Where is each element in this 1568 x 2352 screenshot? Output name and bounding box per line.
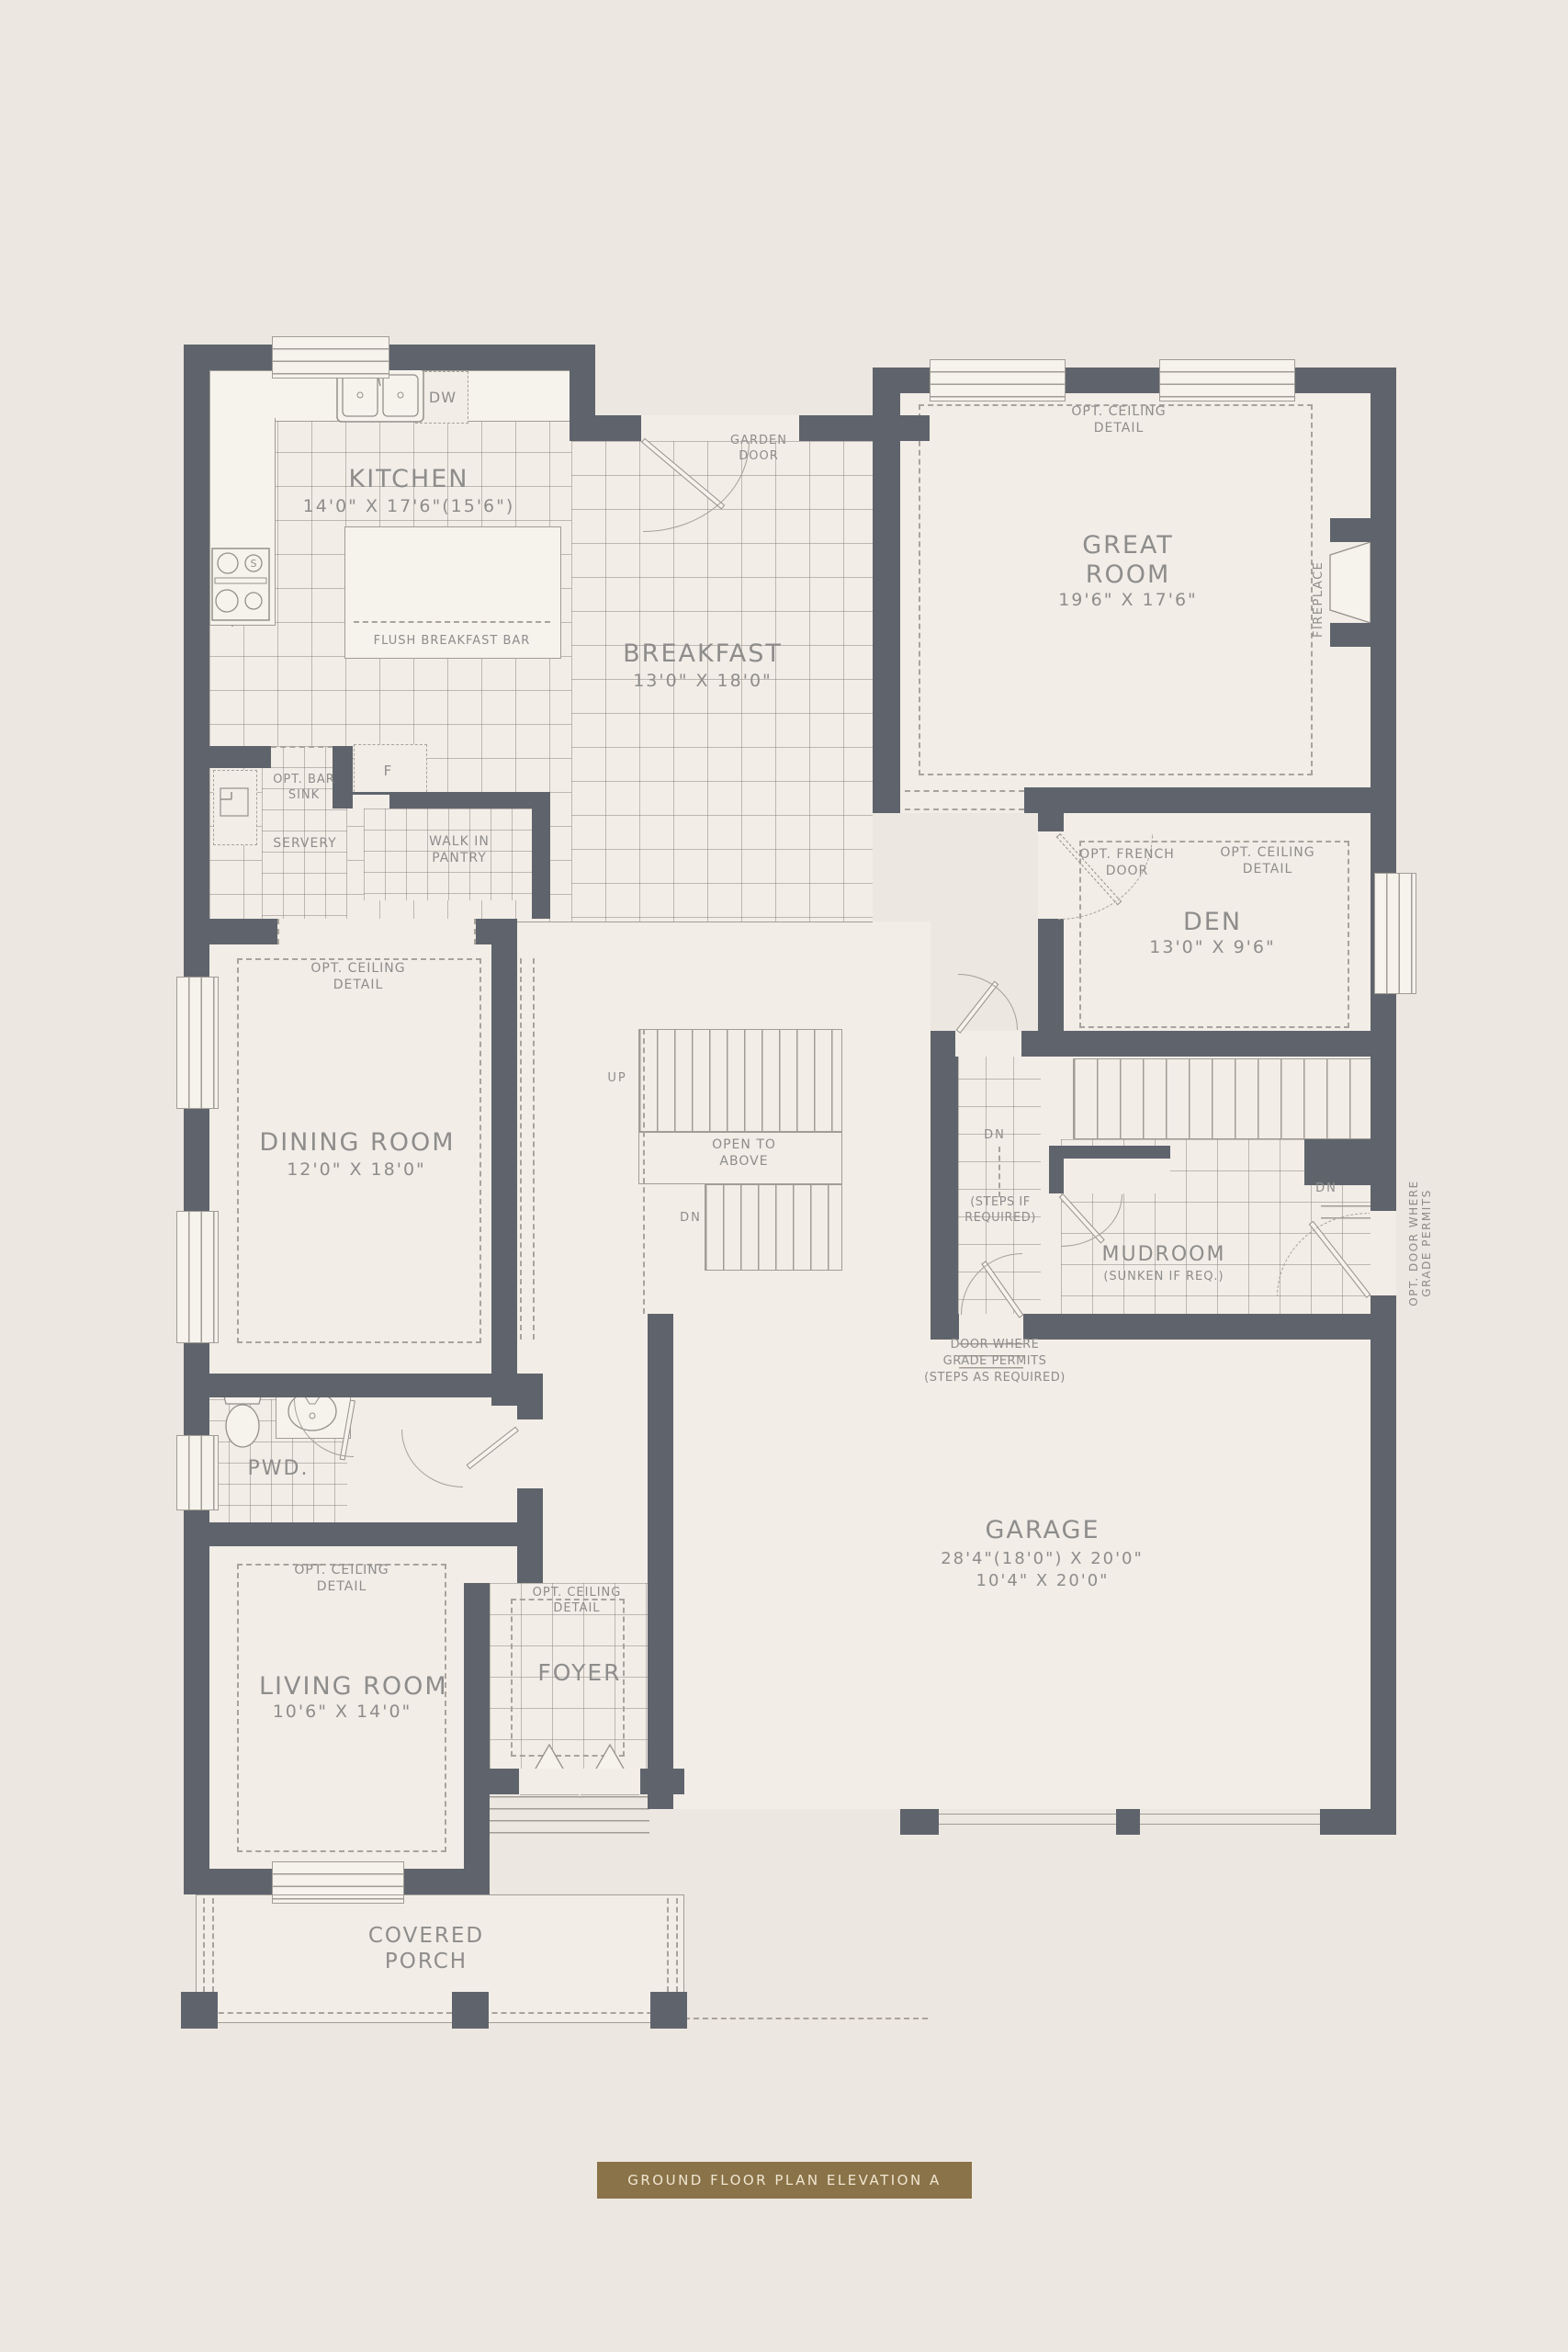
room-dims-dining: 12'0" X 18'0" [265, 1159, 448, 1181]
room-label-kitchen: KITCHEN [294, 465, 524, 494]
door-grade-label: (STEPS AS REQUIRED) [921, 1371, 1068, 1385]
wall [184, 1522, 517, 1546]
bar-sink-label: OPT. BAR [263, 773, 345, 787]
door-opening [519, 1769, 640, 1794]
room-label-dining: DINING ROOM [237, 1128, 478, 1158]
porch-column-line [212, 1898, 214, 1992]
wall [184, 746, 271, 768]
french-door-label: OPT. FRENCH [1068, 847, 1186, 863]
open-to-above-label: OPEN TO [698, 1137, 790, 1153]
dn-label: DN [676, 1211, 705, 1226]
room-label-living: LIVING ROOM [259, 1672, 424, 1702]
great-room-opening-dash [905, 790, 1024, 792]
mudroom-bench-inner [1064, 1159, 1170, 1193]
porch-column-line [203, 1898, 205, 1992]
flush-bar-label: FLUSH BREAKFAST BAR [360, 634, 544, 649]
room-label-pantry: WALK IN [413, 834, 505, 850]
ceiling-detail-label: OPT. CEILING [282, 1563, 401, 1578]
island-flush-edge-dash [354, 621, 550, 623]
wall [1320, 1809, 1396, 1835]
ceiling-detail-label: OPT. CEILING [299, 961, 418, 977]
window [176, 1435, 219, 1510]
wall [1116, 1809, 1140, 1835]
room-label-porch: COVERED [364, 1924, 489, 1950]
wall [1024, 787, 1371, 813]
room-label-great-room: GREAT [1055, 531, 1201, 560]
room-label-porch: PORCH [364, 1950, 489, 1975]
stair-down [705, 1184, 842, 1271]
wall [900, 1809, 939, 1835]
window [1374, 873, 1416, 994]
open-to-above-label: ABOVE [698, 1154, 790, 1170]
steps-if-required-label: REQUIRED) [959, 1211, 1042, 1226]
ceiling-detail-label: OPT. CEILING [1059, 404, 1179, 420]
breakfast-floor-edge [517, 922, 873, 922]
wall [648, 1314, 673, 1809]
wall [1304, 1139, 1371, 1185]
ceiling-detail-label: DETAIL [1059, 421, 1179, 436]
ceiling-detail-label: DETAIL [299, 978, 418, 993]
bar-sink-label: SINK [263, 788, 345, 803]
room-dims-garage: 28'4"(18'0") X 20'0" [939, 1549, 1145, 1569]
ceiling-detail-label: DETAIL [525, 1601, 628, 1616]
window [272, 336, 389, 379]
garden-door-label: GARDEN [716, 434, 801, 448]
entry-steps [490, 1796, 649, 1838]
room-dims-kitchen: 14'0" X 17'6"(15'6") [294, 496, 524, 517]
room-dims-breakfast: 13'0" X 18'0" [606, 671, 799, 692]
plan-title-text: GROUND FLOOR PLAN ELEVATION A [627, 2172, 941, 2188]
hall-to-mud-door-swing [958, 974, 1018, 1030]
exterior-notch-top [595, 345, 873, 415]
plan-title-banner: GROUND FLOOR PLAN ELEVATION A [597, 2162, 972, 2199]
walkway-dash [684, 2018, 928, 2019]
door-grade-label: DOOR WHERE [921, 1338, 1068, 1352]
room-label-pantry: PANTRY [413, 851, 505, 866]
fridge-label: F [370, 763, 407, 779]
window [930, 359, 1066, 401]
fireplace-icon [1330, 542, 1371, 623]
french-door-label: DOOR [1068, 864, 1186, 879]
garden-door-label: DOOR [716, 449, 801, 464]
room-label-garage: GARAGE [960, 1516, 1125, 1545]
stair-up [638, 1029, 842, 1132]
ceiling-detail-label: OPT. CEILING [1208, 845, 1327, 861]
cased-opening [277, 919, 476, 944]
stove-icon: S [211, 548, 270, 621]
bar-sink-icon [219, 783, 250, 820]
door-grade-label: GRADE PERMITS [921, 1354, 1068, 1369]
room-label-mudroom: MUDROOM [1090, 1243, 1237, 1267]
door-opening [1371, 1211, 1396, 1295]
dining-hutch-dash [520, 958, 522, 1340]
wall [532, 792, 550, 919]
room-label-servery: SERVERY [264, 836, 346, 852]
steps-if-required-label: (STEPS IF [959, 1195, 1042, 1210]
dishwasher-label: DW [419, 389, 467, 406]
garage-door-head [939, 1814, 1116, 1815]
ceiling-detail-label: DETAIL [1208, 862, 1327, 877]
room-dims-great-room: 19'6" X 17'6" [1045, 590, 1211, 611]
wall [931, 1051, 958, 1314]
wall [184, 370, 209, 1894]
wall [873, 393, 900, 813]
door-opening [955, 1031, 1021, 1057]
ceiling-detail-label: DETAIL [282, 1579, 401, 1595]
opt-door-grade-line: OPT. DOOR WHERE [1407, 1174, 1420, 1312]
room-label-great-room: ROOM [1055, 560, 1201, 590]
porch-post [650, 1992, 687, 2029]
floor-plan: S [0, 0, 1568, 2352]
wall [184, 345, 595, 370]
fireplace-label: FIREPLACE [1312, 561, 1325, 638]
garage-door-head [1140, 1824, 1320, 1825]
up-label: UP [599, 1071, 636, 1086]
fireplace-jamb [1330, 518, 1371, 542]
opt-door-grade-label: OPT. DOOR WHERE GRADE PERMITS [1407, 1174, 1433, 1312]
room-label-pwd: PWD. [237, 1457, 320, 1481]
room-label-den: DEN [1153, 908, 1272, 937]
porch-column-line [676, 1898, 678, 1992]
dn-label: DN [979, 1128, 1010, 1143]
dn-label: DN [1310, 1182, 1343, 1196]
porch-post [452, 1992, 489, 2029]
door-opening [959, 1314, 1023, 1340]
svg-text:S: S [251, 558, 257, 570]
porch-column-line [667, 1898, 669, 1992]
porch-edge-dash [200, 2012, 680, 2014]
fireplace-jamb [1330, 623, 1371, 647]
ceiling-detail-label: OPT. CEILING [525, 1586, 628, 1600]
dining-hutch-dash [533, 958, 535, 1340]
stair-rail-dash [643, 1029, 645, 1314]
room-note-mudroom: (SUNKEN IF REQ.) [1095, 1270, 1233, 1284]
door-opening [353, 795, 389, 808]
garage-door-head [1140, 1814, 1320, 1815]
window [176, 977, 219, 1109]
stair-basement [1073, 1058, 1372, 1139]
room-label-breakfast: BREAKFAST [588, 639, 818, 669]
wall [464, 1583, 490, 1894]
room-dims-living: 10'6" X 14'0" [266, 1702, 418, 1723]
wall [184, 1374, 517, 1397]
wall [1371, 393, 1396, 813]
room-dims-den: 13'0" X 9'6" [1144, 937, 1281, 958]
wall [491, 944, 517, 1406]
door-opening [517, 1419, 543, 1488]
great-room-opening-dash [905, 808, 1024, 810]
mudroom-dn-arrow [998, 1147, 1000, 1197]
garage-door-head [939, 1824, 1116, 1825]
room-label-foyer: FOYER [529, 1659, 630, 1687]
room-dims-garage: 10'4" X 20'0" [969, 1571, 1116, 1591]
window [176, 1211, 219, 1343]
porch-post [181, 1992, 218, 2029]
window [1159, 359, 1295, 401]
opt-door-grade-line: GRADE PERMITS [1420, 1174, 1433, 1312]
